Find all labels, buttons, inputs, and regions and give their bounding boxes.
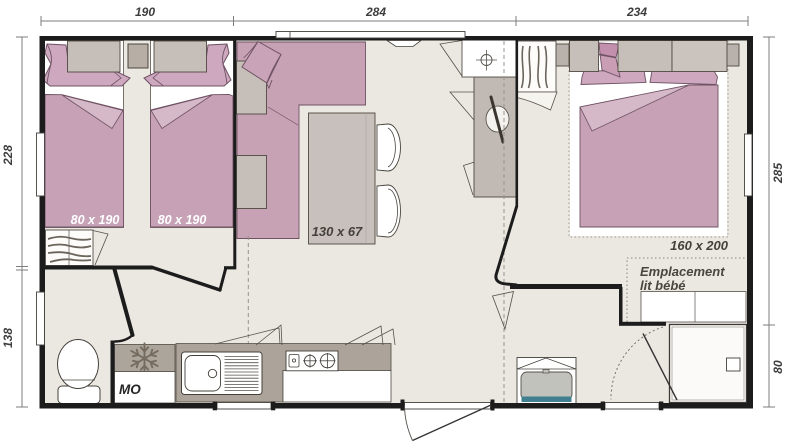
svg-text:190: 190 — [135, 5, 155, 19]
svg-text:284: 284 — [365, 5, 386, 19]
svg-text:234: 234 — [626, 5, 647, 19]
svg-text:160 x 200: 160 x 200 — [670, 238, 729, 253]
svg-text:Emplacement: Emplacement — [640, 264, 725, 279]
svg-text:lit bébé: lit bébé — [640, 278, 686, 293]
svg-text:130 x 67: 130 x 67 — [312, 224, 363, 239]
svg-text:228: 228 — [1, 145, 15, 166]
svg-text:80: 80 — [771, 360, 785, 374]
svg-text:138: 138 — [1, 328, 15, 348]
svg-text:80 x 190: 80 x 190 — [158, 213, 207, 227]
svg-text:MO: MO — [119, 382, 141, 397]
svg-text:80 x 190: 80 x 190 — [71, 213, 120, 227]
svg-text:285: 285 — [771, 163, 785, 184]
